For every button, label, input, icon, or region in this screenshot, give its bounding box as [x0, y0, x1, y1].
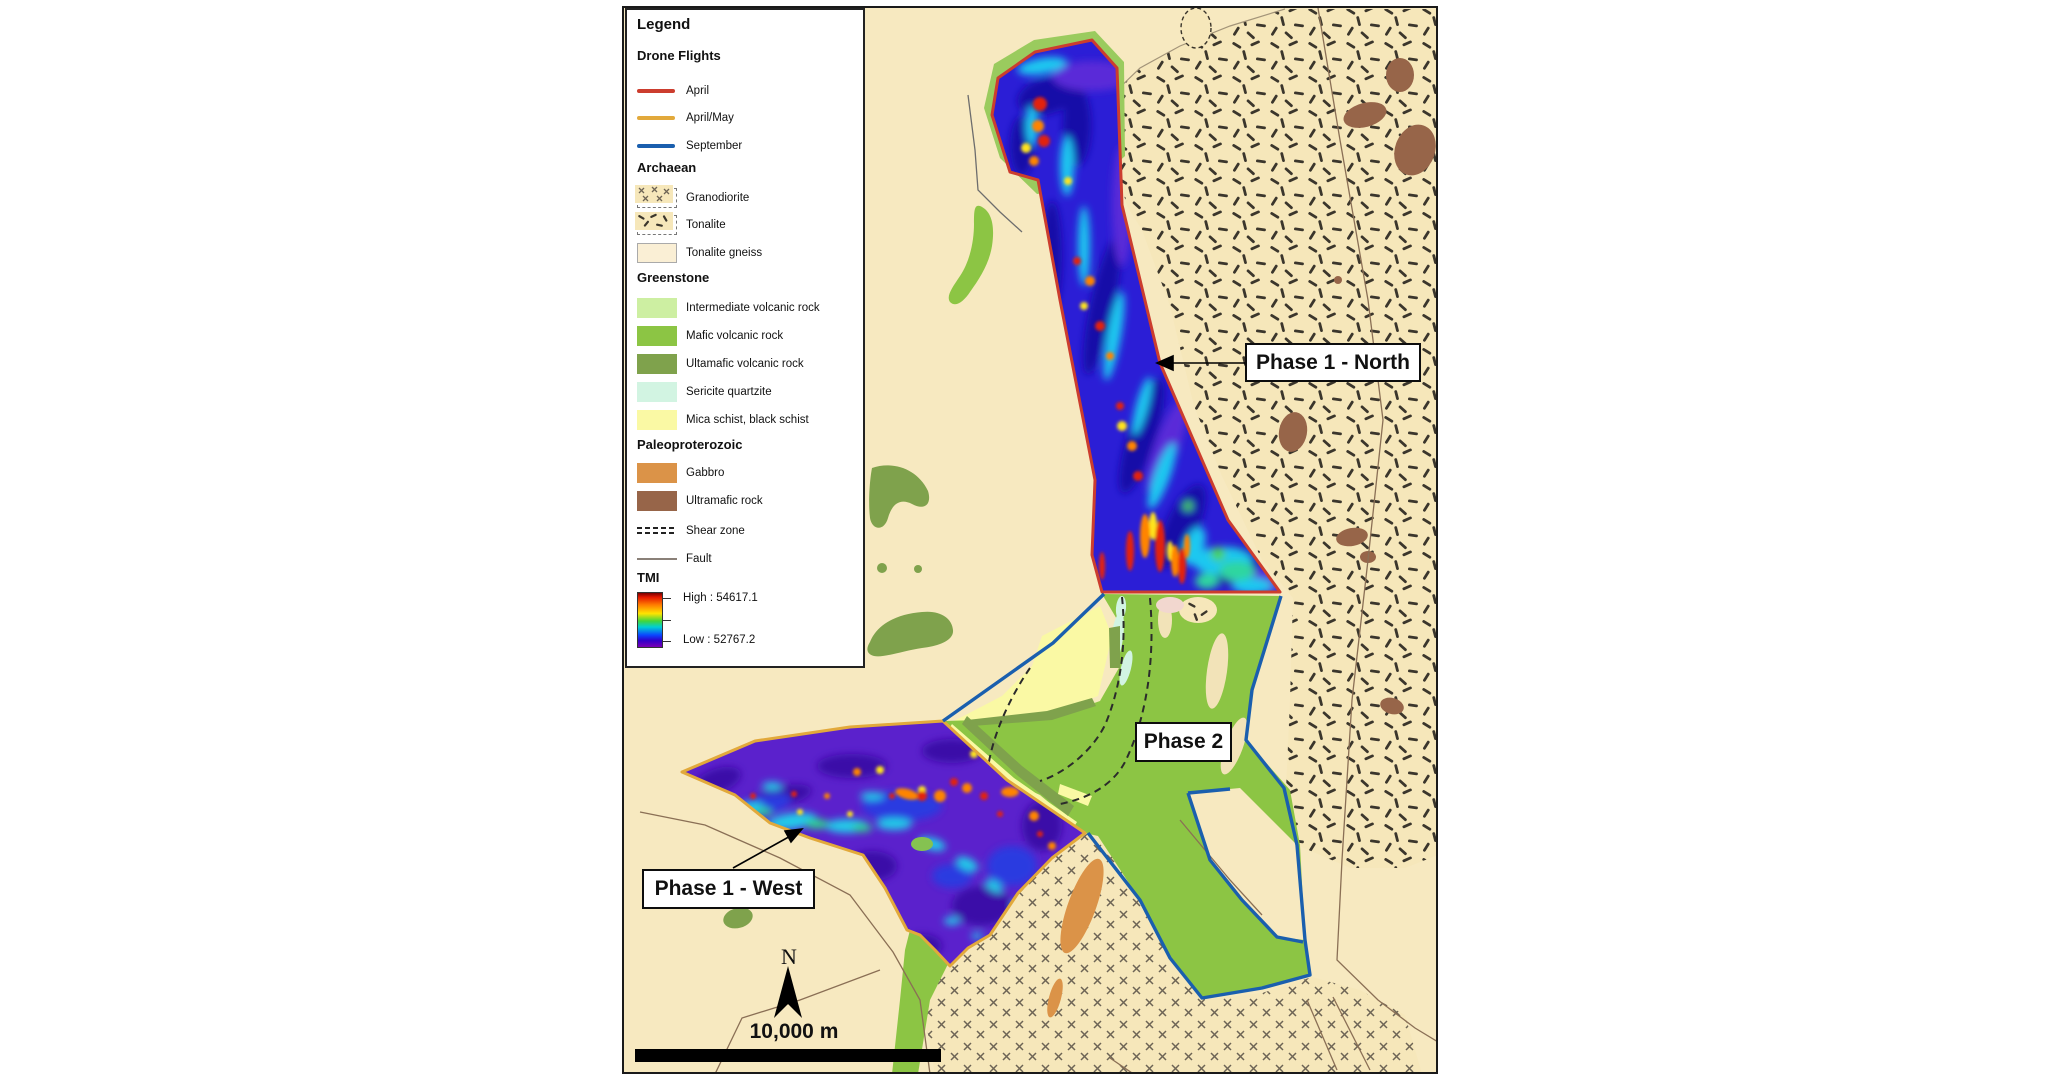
- mafic-volcanic-swatch: [637, 326, 677, 346]
- september-line-swatch: [637, 144, 675, 148]
- legend-item-ultamafic-volcanic: Ultamafic volcanic rock: [637, 353, 804, 374]
- map-frame: Legend Drone Flights April April/May Sep…: [622, 6, 1438, 1074]
- tmi-high-label: High : 54617.1: [683, 592, 758, 604]
- tmi-color-ramp: [637, 592, 663, 648]
- legend-item-sericite-quartzite: Sericite quartzite: [637, 381, 772, 402]
- fault-symbol: [637, 558, 677, 560]
- geological-map-page: Legend Drone Flights April April/May Sep…: [0, 0, 2063, 1079]
- ultramafic-rock-swatch: [637, 491, 677, 511]
- legend-item-tonalite: Tonalite: [637, 214, 726, 235]
- scale-text: 10,000 m: [704, 1020, 884, 1044]
- legend-heading-tmi: TMI: [637, 570, 659, 585]
- intermediate-volcanic-swatch: [637, 298, 677, 318]
- legend-item-ultramafic-rock: Ultramafic rock: [637, 490, 763, 511]
- gabbro-swatch: [637, 463, 677, 483]
- legend-item-april: April: [637, 80, 709, 101]
- phase1-north-label: Phase 1 - North: [1245, 343, 1421, 382]
- tonalite-gneiss-swatch: [637, 243, 677, 263]
- granodiorite-swatch: [637, 188, 677, 208]
- legend-title: Legend: [637, 16, 690, 33]
- legend-item-mica-schist: Mica schist, black schist: [637, 409, 809, 430]
- phase1-west-label: Phase 1 - West: [642, 869, 815, 909]
- legend-panel: Legend Drone Flights April April/May Sep…: [625, 8, 865, 668]
- scale-bar: [635, 1049, 941, 1062]
- april-line-swatch: [637, 89, 675, 93]
- sericite-quartzite-swatch: [637, 382, 677, 402]
- legend-heading-paleoproterozoic: Paleoproterozoic: [637, 437, 742, 452]
- legend-item-intermediate-volcanic: Intermediate volcanic rock: [637, 297, 820, 318]
- april-may-line-swatch: [637, 116, 675, 120]
- legend-item-gabbro: Gabbro: [637, 462, 724, 483]
- legend-heading-drone-flights: Drone Flights: [637, 48, 721, 63]
- mica-schist-swatch: [637, 410, 677, 430]
- legend-item-mafic-volcanic: Mafic volcanic rock: [637, 325, 783, 346]
- shear-zone-symbol: [637, 527, 677, 534]
- legend-item-shear-zone: Shear zone: [637, 520, 745, 541]
- ultamafic-volcanic-swatch: [637, 354, 677, 374]
- phase2-label: Phase 2: [1135, 722, 1232, 762]
- legend-heading-greenstone: Greenstone: [637, 270, 709, 285]
- legend-item-september: September: [637, 135, 742, 156]
- north-label: N: [774, 944, 804, 970]
- tonalite-swatch: [637, 215, 677, 235]
- tmi-low-label: Low : 52767.2: [683, 634, 755, 646]
- legend-heading-archaean: Archaean: [637, 160, 696, 175]
- legend-item-fault: Fault: [637, 548, 712, 569]
- legend-item-tonalite-gneiss: Tonalite gneiss: [637, 242, 762, 263]
- legend-item-april-may: April/May: [637, 107, 734, 128]
- legend-item-granodiorite: Granodiorite: [637, 187, 749, 208]
